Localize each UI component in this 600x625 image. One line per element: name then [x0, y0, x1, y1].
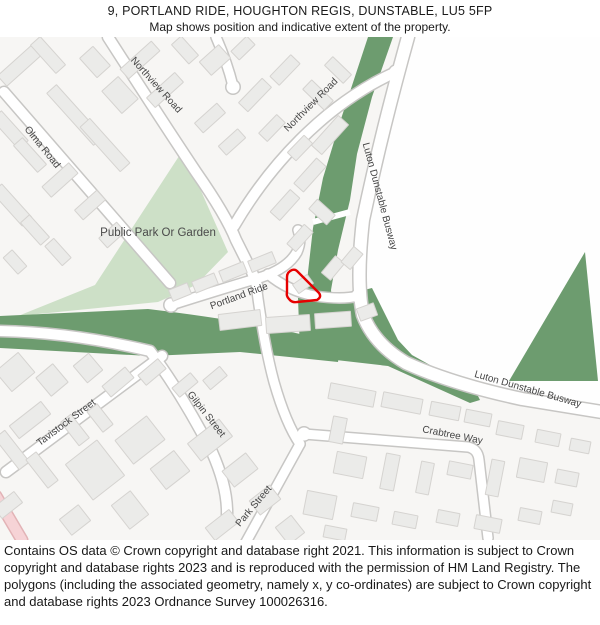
building-41: [265, 314, 310, 333]
culdesac-surface-3: [298, 428, 311, 441]
copyright-text: Contains OS data © Crown copyright and d…: [0, 540, 600, 610]
map-canvas: Olma RoadNorthview RoadNorthview RoadPub…: [0, 37, 600, 540]
culdesac-surface-2: [227, 81, 240, 94]
property-address-title: 9, PORTLAND RIDE, HOUGHTON REGIS, DUNSTA…: [0, 0, 600, 18]
label-public-park: Public Park Or Garden: [100, 227, 216, 239]
property-map-report: { "title": { "line1": "9, PORTLAND RIDE,…: [0, 0, 600, 625]
culdesac-surface-4: [390, 66, 403, 79]
report-header: 9, PORTLAND RIDE, HOUGHTON REGIS, DUNSTA…: [0, 0, 600, 37]
map-viewport: Olma RoadNorthview RoadNorthview RoadPub…: [0, 37, 600, 540]
building-82: [303, 490, 337, 519]
map-description-subtitle: Map shows position and indicative extent…: [0, 18, 600, 34]
report-footer: Contains OS data © Crown copyright and d…: [0, 540, 600, 625]
culdesac-surface-1: [352, 290, 365, 303]
building-42: [315, 311, 352, 328]
